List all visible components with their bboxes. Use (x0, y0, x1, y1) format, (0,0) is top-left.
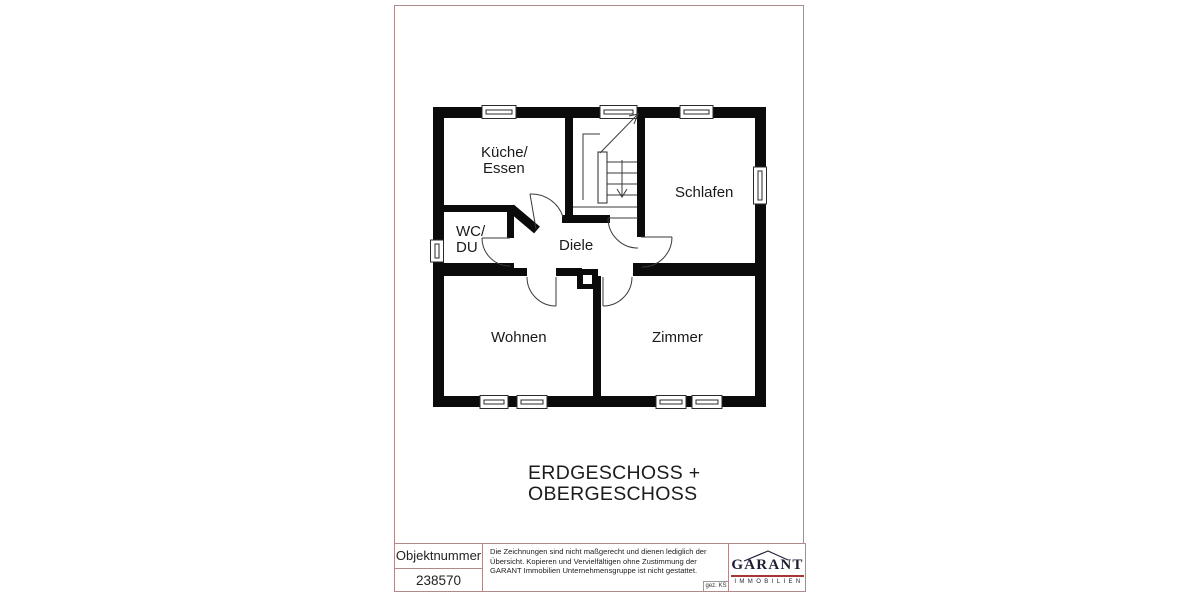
room-label-wc-line2: DU (456, 239, 478, 256)
roof-icon (742, 550, 790, 562)
stair-rail (598, 152, 607, 203)
door-arc (603, 277, 632, 306)
window-symbol (480, 396, 508, 409)
door-arc (527, 277, 556, 306)
wall-segment (755, 107, 766, 407)
door-arc (530, 194, 563, 217)
room-label-kueche-line1: Küche/ (481, 144, 529, 161)
object-number-value: 238570 (395, 569, 482, 592)
door-arc (642, 237, 672, 267)
wall-segment (562, 215, 610, 223)
stairs-down-arrow-icon (617, 160, 627, 197)
door-arc (482, 238, 510, 266)
door-arc (608, 218, 638, 248)
wall-segment (565, 118, 573, 216)
wall-segment (433, 268, 527, 276)
object-number-label: Objektnummer (395, 544, 482, 569)
logo-divider (731, 575, 803, 577)
window-symbol (600, 106, 637, 119)
room-label-wc-line1: WC/ (456, 223, 486, 240)
page-canvas: Küche/ Essen Schlafen WC/ DU Diele Wohne… (0, 0, 1200, 600)
wall-segment (433, 205, 514, 212)
wall-post-core (583, 275, 592, 284)
window-symbol (692, 396, 722, 409)
logo-subtitle: IMMOBILIEN (731, 579, 803, 585)
room-label-zimmer: Zimmer (652, 329, 703, 346)
wall-segment (637, 118, 645, 237)
room-label-wohnen: Wohnen (491, 329, 547, 346)
room-label-diele: Diele (559, 237, 593, 254)
stairs-up-arrow-icon (600, 114, 638, 153)
plan-title-line1: ERDGESCHOSS + (528, 463, 700, 484)
garant-logo: GARANT IMMOBILIEN (731, 550, 803, 585)
stair-run-outline (583, 134, 600, 200)
window-symbol (754, 167, 767, 204)
signature-box: gez. KS (703, 581, 728, 591)
window-symbol (431, 240, 444, 262)
floor-plan: Küche/ Essen Schlafen WC/ DU Diele Wohne… (428, 100, 773, 412)
staircase (573, 114, 638, 207)
room-label-kueche-line2: Essen (483, 160, 525, 177)
wall-segment (593, 276, 601, 396)
window-symbol (680, 106, 713, 119)
room-label-schlafen: Schlafen (675, 184, 733, 201)
object-number-cell: Objektnummer 238570 (395, 544, 483, 591)
plan-title-line2: OBERGESCHOSS (528, 484, 700, 505)
title-block: Objektnummer 238570 Die Zeichnungen sind… (394, 543, 806, 592)
plan-title: ERDGESCHOSS + OBERGESCHOSS (528, 463, 700, 504)
disclaimer-text: Die Zeichnungen sind nicht maßgerecht un… (484, 544, 727, 591)
logo-cell: GARANT IMMOBILIEN (728, 544, 806, 591)
window-symbol (517, 396, 547, 409)
window-symbol (482, 106, 516, 119)
window-symbol (656, 396, 686, 409)
